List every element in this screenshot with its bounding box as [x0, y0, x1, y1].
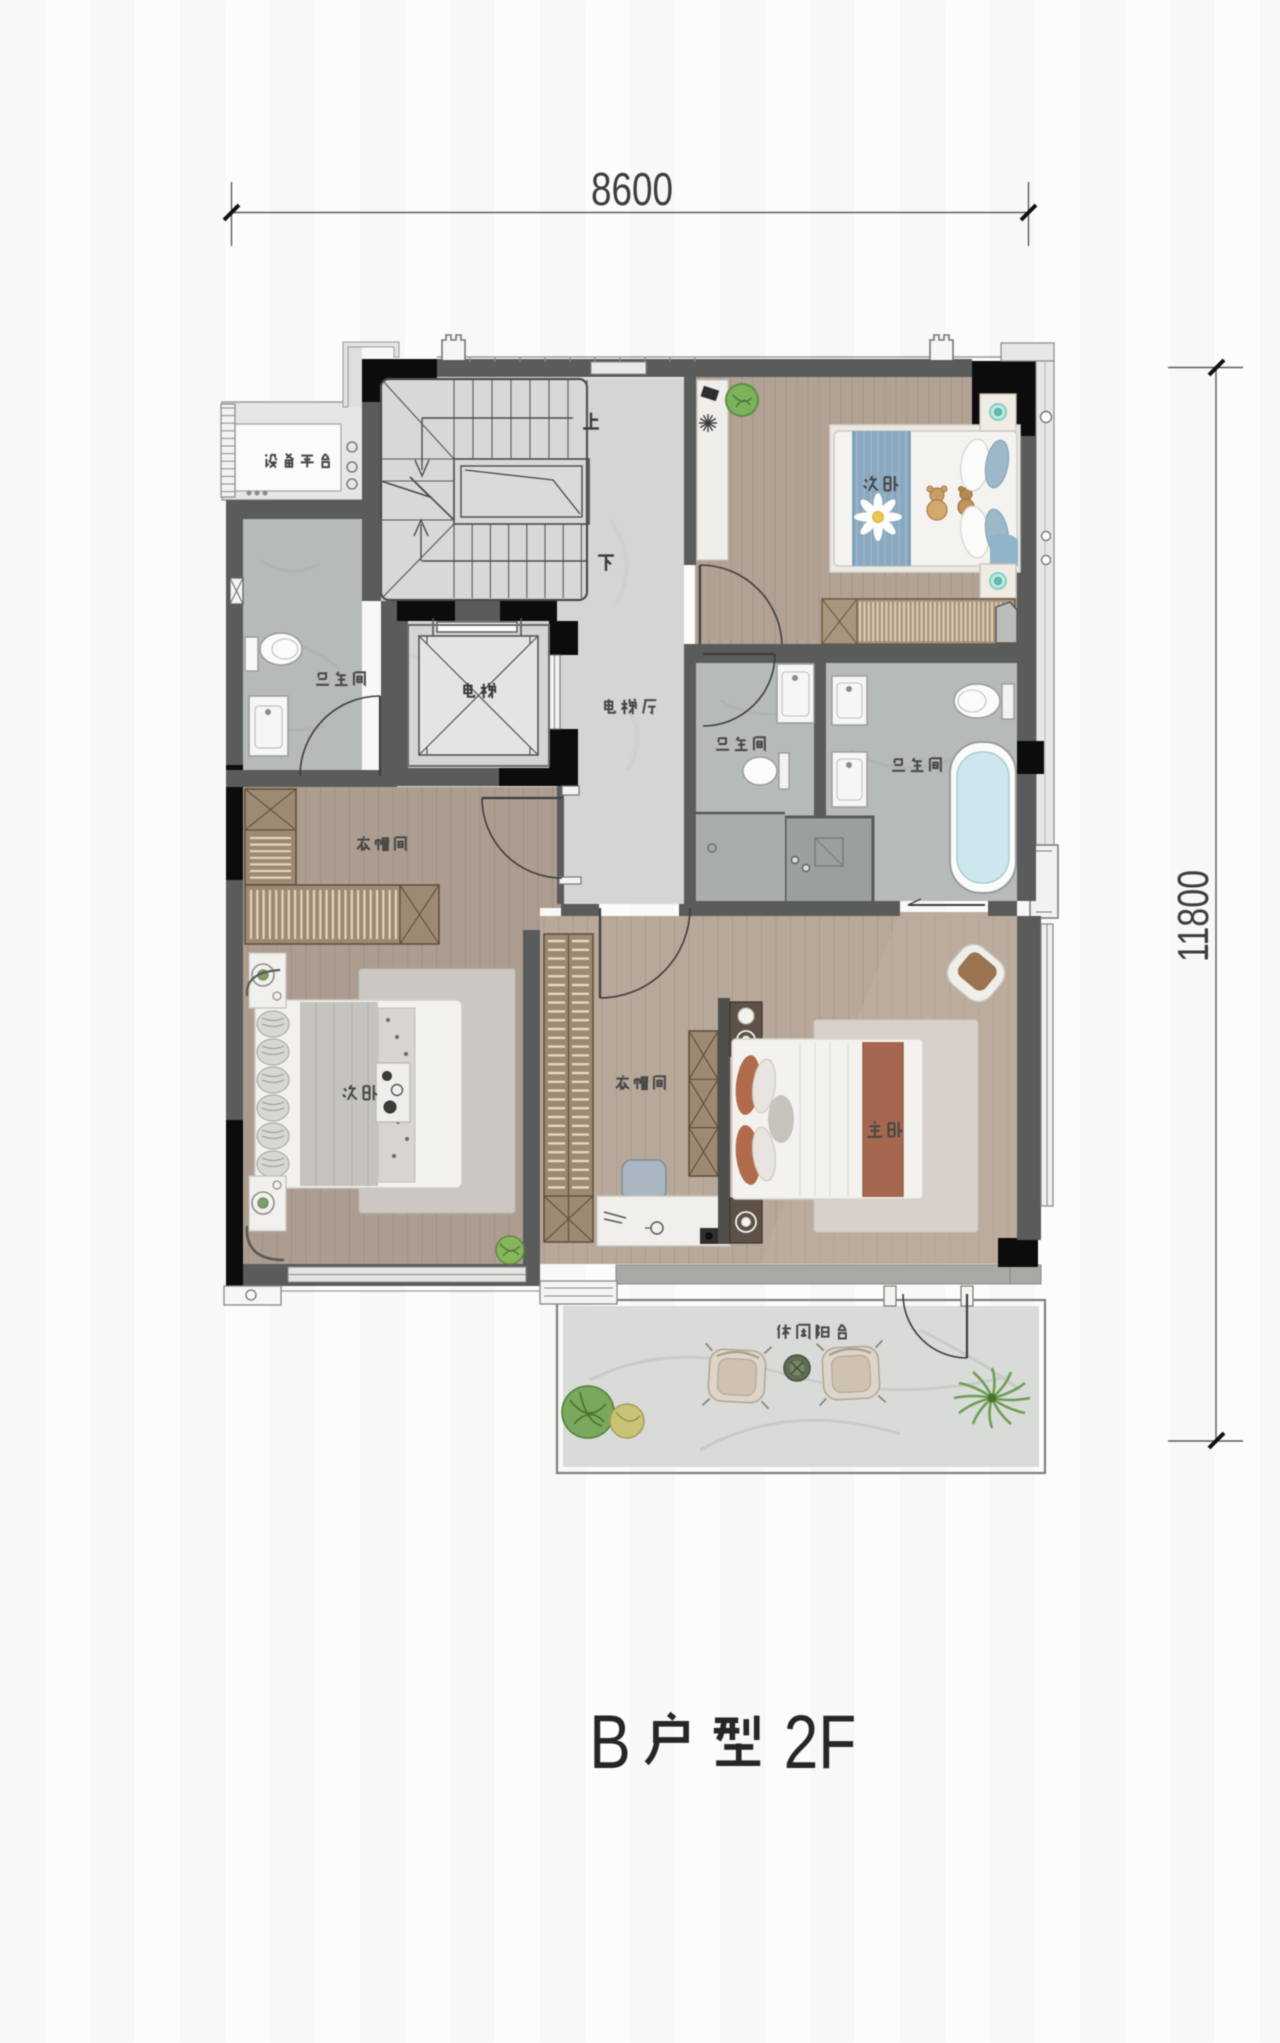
svg-text:8600: 8600 [591, 163, 673, 215]
svg-text:B: B [589, 1699, 631, 1784]
svg-text:2F: 2F [784, 1699, 857, 1784]
svg-text:11800: 11800 [1169, 870, 1218, 962]
